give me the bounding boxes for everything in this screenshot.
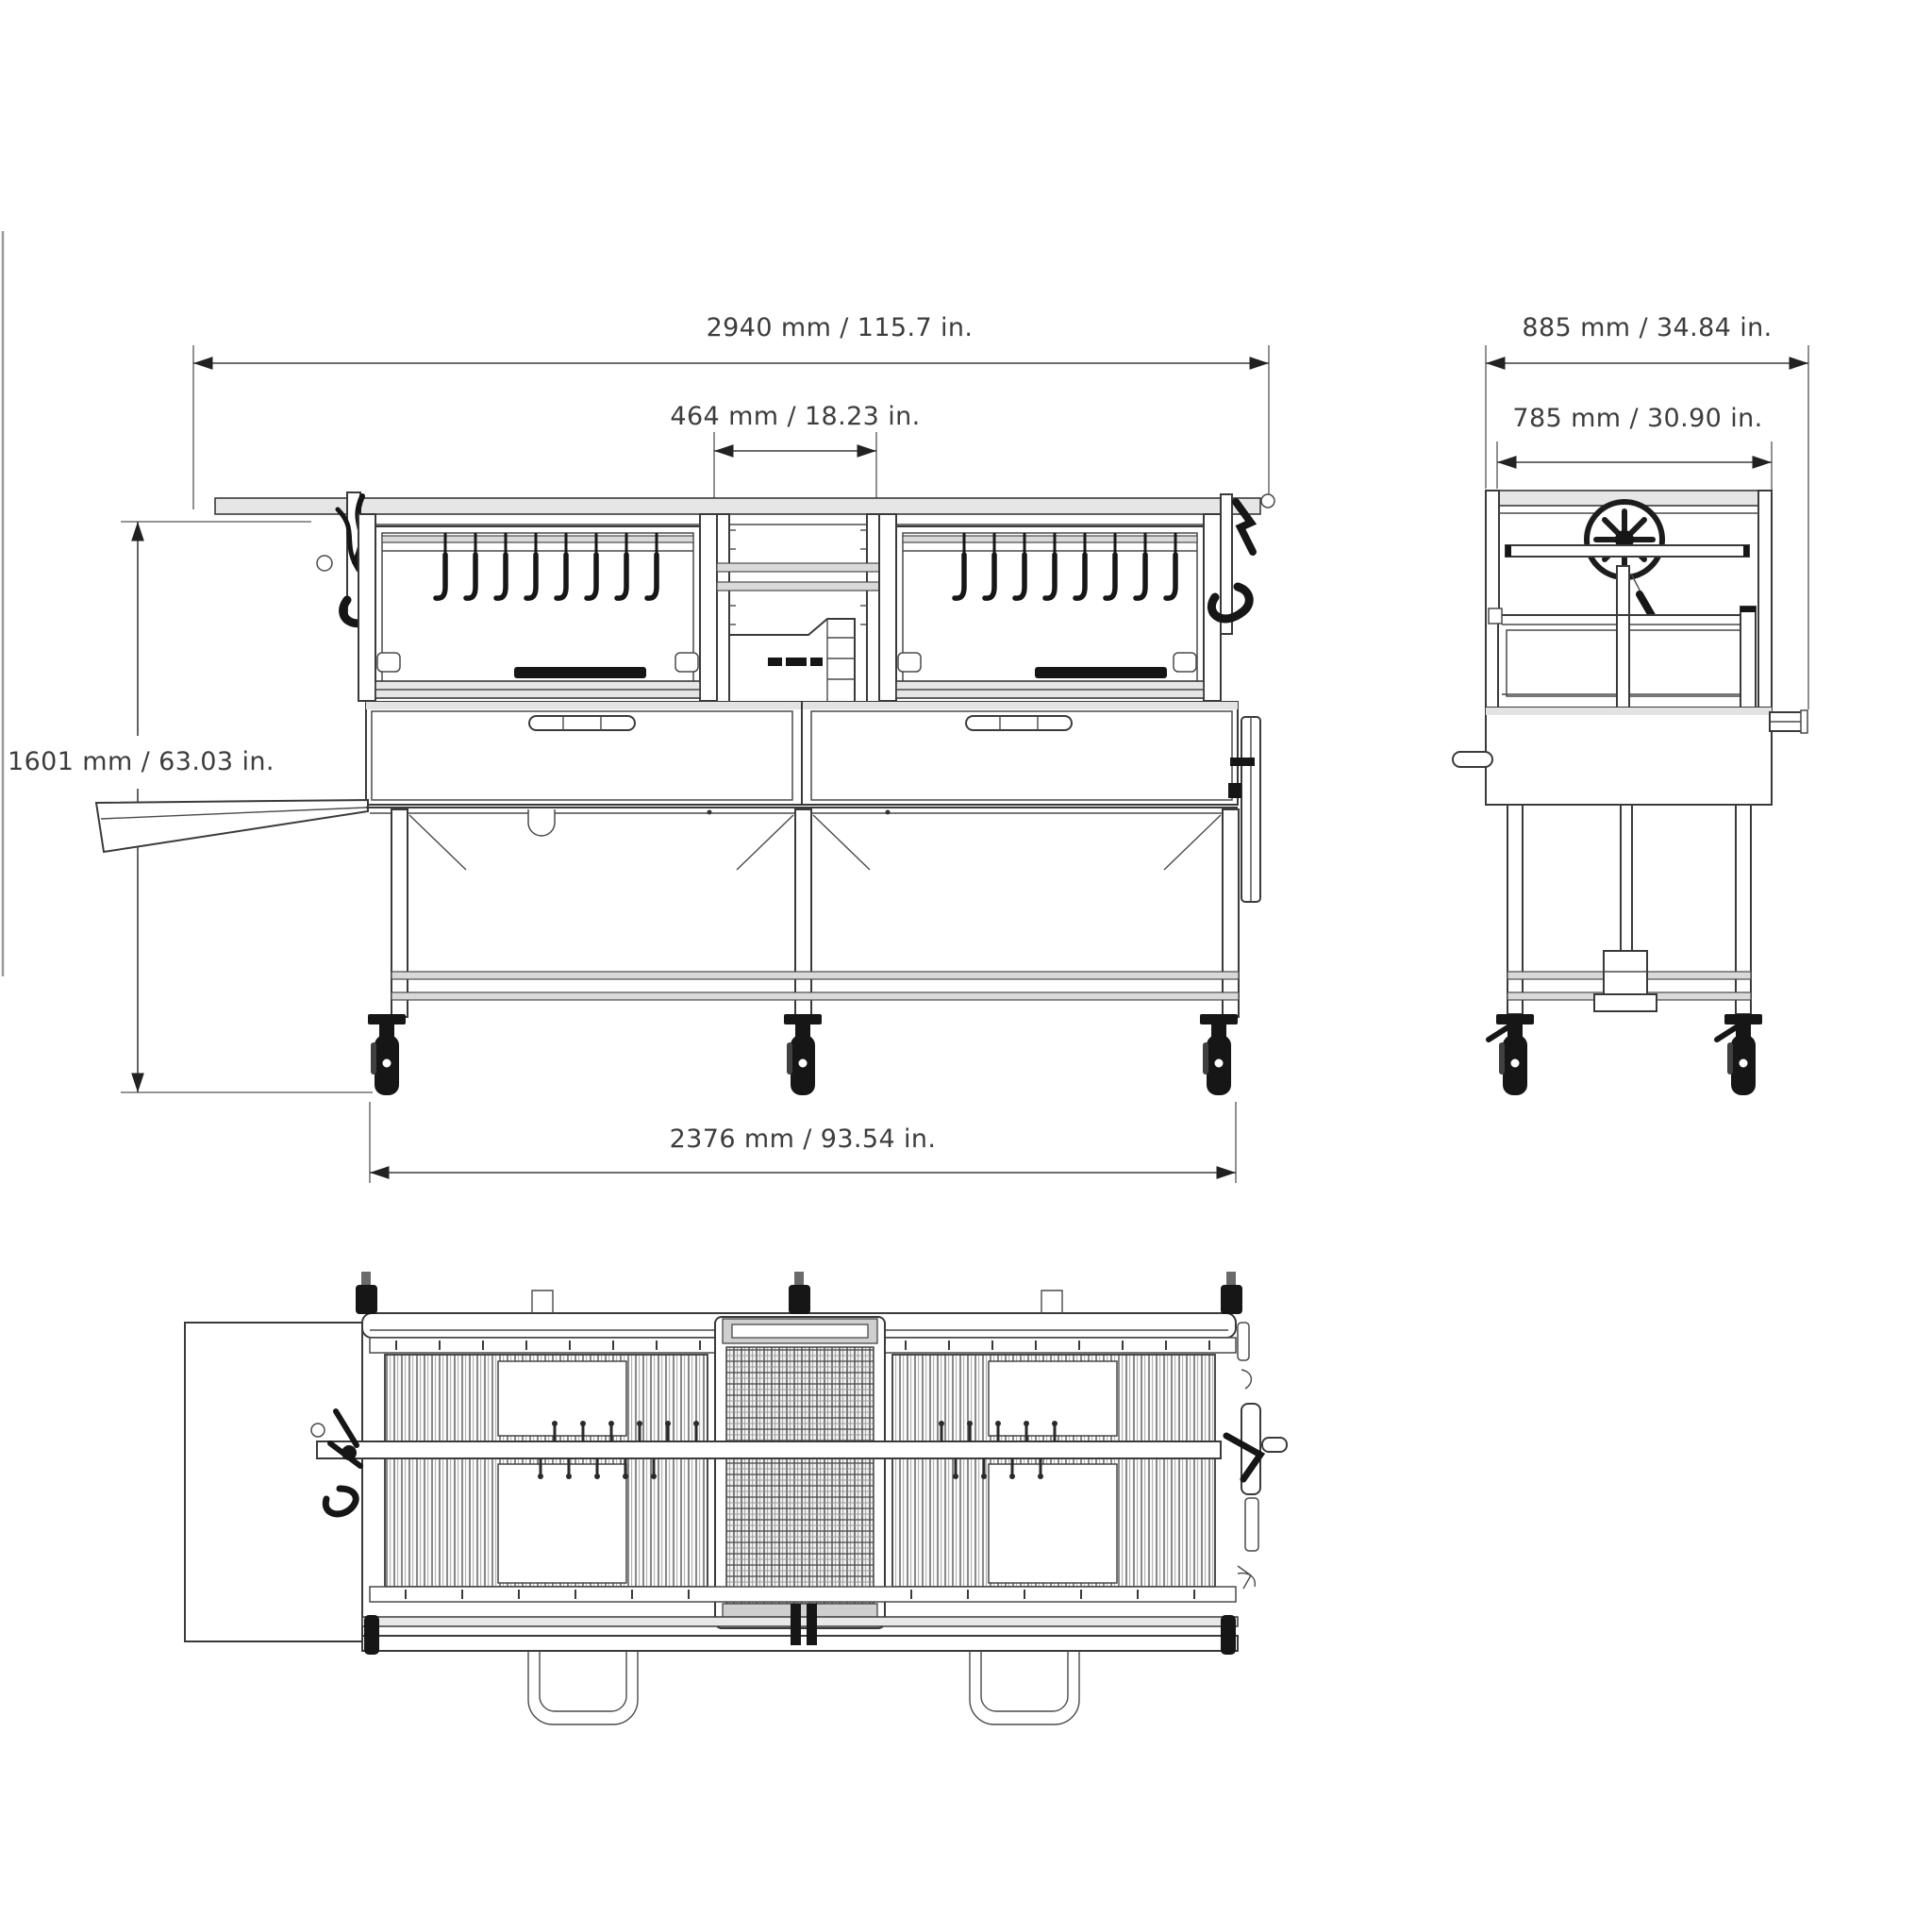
frame-band-bottom (370, 1587, 1236, 1602)
door-handle-left (514, 667, 646, 678)
lower-shelf-rail (391, 972, 1239, 979)
lower-shelf-rail (391, 992, 1239, 1000)
dim-overall-width-label: 2940 mm / 115.7 in. (707, 313, 974, 342)
side-grill-unit (1453, 491, 1807, 1095)
grill-technical-drawing: 2940 mm / 115.7 in. 464 mm / 18.23 in. 1… (0, 0, 1932, 1932)
drawer-handle-left (529, 716, 635, 730)
caster-wheel-icon (1496, 1014, 1534, 1095)
brand-mark (768, 658, 823, 666)
crank-end-top (1226, 1404, 1287, 1587)
top-view (185, 1272, 1287, 1724)
dimension-base-width: 2376 mm / 93.54 in. (370, 1102, 1236, 1183)
caster-wheel-icon (1724, 1014, 1762, 1095)
dim-body-depth-label: 785 mm / 30.90 in. (1512, 404, 1762, 433)
left-grill-chamber (358, 514, 717, 701)
caster-wheel-icon (368, 1014, 406, 1095)
caster-wheel-icon (1200, 1014, 1238, 1095)
legs-side (1507, 805, 1751, 1014)
side-shelf-top (185, 1323, 362, 1641)
top-rail (215, 498, 1260, 514)
grill-grate-left (385, 1355, 708, 1587)
charcoal-basket-top (715, 1317, 885, 1628)
rear-outlet (1770, 710, 1807, 733)
drawer-handle-right (966, 716, 1072, 730)
legs-front (391, 809, 1239, 1017)
front-grill-unit (96, 492, 1274, 1095)
dimension-body-depth: 785 mm / 30.90 in. (1497, 404, 1772, 492)
casters-side (1489, 1014, 1762, 1095)
vent-tab (1041, 1291, 1062, 1313)
right-grill-chamber (879, 514, 1221, 701)
side-handle (1453, 752, 1492, 767)
dim-base-width-label: 2376 mm / 93.54 in. (670, 1124, 937, 1154)
center-ember-column (717, 514, 879, 703)
dim-overall-depth-label: 885 mm / 34.84 in. (1522, 313, 1772, 342)
grill-grate-right (892, 1355, 1215, 1587)
door-handle-right (1035, 667, 1167, 678)
caster-tabs-top (356, 1272, 1242, 1314)
vent-tab (532, 1291, 553, 1313)
dim-height-label: 1601 mm / 63.03 in. (8, 747, 275, 776)
height-crank (1211, 494, 1274, 634)
pull-handle-right (970, 1651, 1079, 1724)
dimension-center-width: 464 mm / 18.23 in. (670, 402, 920, 498)
dim-center-width-label: 464 mm / 18.23 in. (670, 402, 920, 431)
side-counter (1453, 708, 1772, 805)
side-view: 885 mm / 34.84 in. 785 mm / 30.90 in. (1453, 313, 1808, 1095)
folding-shelf-left (96, 800, 368, 852)
front-view: 2940 mm / 115.7 in. 464 mm / 18.23 in. 1… (8, 313, 1274, 1183)
casters-front (368, 1014, 1238, 1095)
caster-wheel-icon (784, 1014, 822, 1095)
apron-clip (528, 809, 555, 836)
pull-handle-left (528, 1651, 638, 1724)
shelf-bar-side (1506, 545, 1749, 557)
counter-drawers (366, 702, 1238, 805)
drawing-sheet: 2940 mm / 115.7 in. 464 mm / 18.23 in. 1… (0, 0, 1932, 1932)
